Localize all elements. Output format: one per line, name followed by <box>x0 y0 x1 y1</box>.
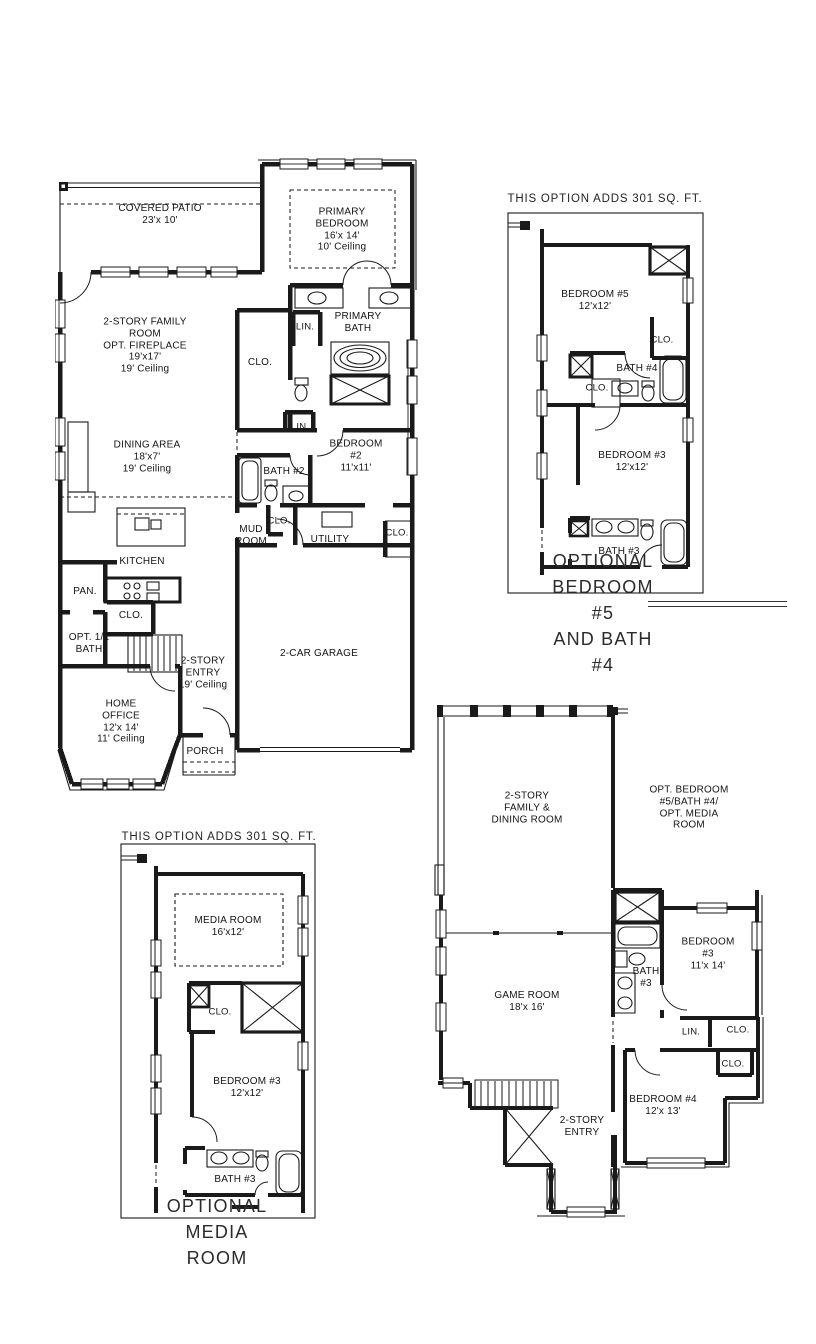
toilet-icon <box>295 378 308 385</box>
sink-counter-icon <box>369 288 411 308</box>
room-label-primary-closet: CLO. <box>248 357 272 369</box>
room-label-closet-1: CLO. <box>651 334 674 345</box>
room-label-home-office: HOME OFFICE 12'x 14' 11' Ceiling <box>97 698 145 745</box>
bath3-fixtures <box>615 892 660 1013</box>
sink-icon <box>618 521 634 533</box>
note-label-opt-rooms: OPT. BEDROOM #5/BATH #4/ OPT. MEDIA ROOM <box>649 784 730 831</box>
sink-icon <box>618 997 632 1009</box>
room-label-family-room: 2-STORY FAMILY ROOM OPT. FIREPLACE 19'x1… <box>103 317 186 376</box>
room-label-bedroom-2: BEDROOM #2 11'x11' <box>324 438 388 473</box>
room-label-bedroom-5: BEDROOM #5 12'x12' <box>561 289 629 313</box>
vanity-icon <box>592 519 638 536</box>
room-label-pantry: PAN. <box>73 586 96 598</box>
room-label-bedroom-3: BEDROOM #3 12'x12' <box>213 1076 281 1100</box>
room-label-bedroom-3: BEDROOM #3 11'x 14' <box>677 936 739 971</box>
sink-icon <box>233 1152 249 1164</box>
room-label-linen: LIN. <box>682 1026 700 1037</box>
bath2-fixtures <box>239 458 310 505</box>
room-label-dining-area: DINING AREA 18'x7' 19' Ceiling <box>114 439 181 474</box>
room-label-mud-closet: CLO. <box>268 515 291 526</box>
room-label-bath-4: BATH #4 <box>616 363 657 375</box>
room-label-bath-2: BATH #2 <box>263 466 304 478</box>
sink-icon <box>308 292 326 304</box>
second-floor-plan: 2-STORY FAMILY & DINING ROOM OPT. BEDROO… <box>425 695 770 1225</box>
option-header: THIS OPTION ADDS 301 SQ. FT. <box>122 831 317 843</box>
room-label-covered-patio: COVERED PATIO 23'x 10' <box>118 203 201 227</box>
kitchen-sink-icon <box>135 518 149 530</box>
room-label-linen-1: LIN. <box>296 321 314 332</box>
corner-marker <box>520 221 530 230</box>
stairs-icon <box>134 636 176 671</box>
sink-icon <box>289 491 303 501</box>
sink-counter-icon <box>283 486 310 505</box>
option-header: THIS OPTION ADDS 301 SQ. FT. <box>508 193 703 205</box>
room-label-garage-closet: CLO. <box>386 527 409 538</box>
room-label-closet-2: CLO. <box>722 1058 745 1069</box>
room-label-entry: 2-STORY ENTRY <box>560 1115 604 1139</box>
room-label-mud-room: MUD ROOM <box>235 524 267 548</box>
door-arcs <box>635 985 687 1075</box>
room-label-garage: 2-CAR GARAGE <box>280 648 358 660</box>
stray-line <box>648 601 787 607</box>
vanity-icon <box>207 1150 253 1167</box>
room-label-porch: PORCH <box>186 746 223 758</box>
cooktop-icon <box>124 583 130 589</box>
option-media-plan: THIS OPTION ADDS 301 SQ. FT. MEDIA ROOM … <box>115 820 335 1255</box>
option-caption: OPTIONAL BEDROOM #5 AND BATH #4 <box>547 548 659 678</box>
stairs-icon <box>475 1080 558 1108</box>
room-label-media-room: MEDIA ROOM 16'x12' <box>194 915 261 939</box>
room-label-stair-closet: CLO. <box>119 610 143 622</box>
primary-bath-fixtures <box>295 288 411 404</box>
room-label-primary-bedroom: PRIMARY BEDROOM 16'x 14' 10' Ceiling <box>315 206 368 253</box>
option-media-drawing <box>115 820 335 1255</box>
room-label-bath-3: BATH #3 <box>214 1174 255 1186</box>
room-label-utility: UTILITY <box>311 534 350 546</box>
sink-icon <box>618 977 632 989</box>
room-label-closet-1: CLO. <box>727 1024 750 1035</box>
room-label-game-room: GAME ROOM 18'x 16' <box>494 990 559 1014</box>
toilet-icon <box>642 381 654 387</box>
room-label-bedroom-3: BEDROOM #3 12'x12' <box>598 450 666 474</box>
thick-walls <box>542 229 688 575</box>
room-label-bedroom-4: BEDROOM #4 12'x 13' <box>629 1094 697 1118</box>
room-label-linen-2: LIN. <box>291 421 309 432</box>
toilet-icon <box>641 520 653 526</box>
room-label-family-dining: 2-STORY FAMILY & DINING ROOM <box>491 790 562 825</box>
sink-counter-icon <box>295 288 343 308</box>
option-caption: OPTIONAL MEDIA ROOM <box>158 1193 276 1271</box>
room-label-closet-2: CLO. <box>586 382 609 393</box>
room-label-closet: CLO. <box>209 1006 232 1017</box>
option-bedroom5-plan: THIS OPTION ADDS 301 SQ. FT. BEDROOM #5 … <box>500 185 715 640</box>
room-label-entry: 2-STORY ENTRY 19' Ceiling <box>179 655 228 690</box>
floorplan-sheet: COVERED PATIO 23'x 10' PRIMARY BEDROOM 1… <box>0 0 816 1344</box>
room-label-kitchen: KITCHEN <box>119 556 164 568</box>
toilet-icon <box>256 1151 268 1157</box>
toilet-icon <box>615 951 627 967</box>
room-label-bath-3: BATH #3 <box>633 966 660 990</box>
sink-icon <box>211 1152 227 1164</box>
first-floor-plan: COVERED PATIO 23'x 10' PRIMARY BEDROOM 1… <box>55 150 420 810</box>
sink-icon <box>596 521 612 533</box>
room-label-opt-half-bath: OPT. 1/2 BATH <box>69 632 110 656</box>
sink-icon <box>380 292 398 304</box>
corner-marker <box>137 854 147 863</box>
room-label-primary-bath: PRIMARY BATH <box>335 311 382 335</box>
